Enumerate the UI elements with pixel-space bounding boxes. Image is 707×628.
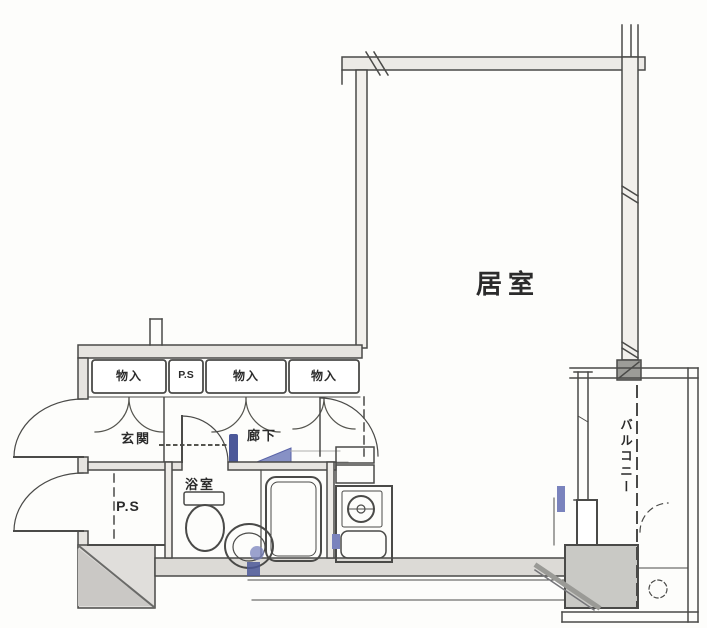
floorplan-canvas: 居室 物入 P.S 物入 物入 玄関 廊下 浴室 P.S バルコニー (0, 0, 707, 628)
storage-2-label: 物入 (221, 367, 271, 384)
floorplan-drawing (0, 0, 707, 628)
exterior-walls (78, 25, 645, 608)
storage-3-label: 物入 (299, 367, 349, 384)
entrance-label: 玄関 (110, 428, 162, 447)
pipe-space-lower-label: P.S (106, 498, 150, 514)
living-room-label: 居室 (468, 264, 548, 301)
entrance-hallway (14, 397, 378, 531)
balcony-label: バルコニー (616, 392, 635, 522)
kitchen-structure (332, 447, 392, 562)
hallway-label: 廊下 (236, 425, 288, 444)
pipe-space-upper-label: P.S (168, 369, 204, 381)
bathroom-label: 浴室 (174, 474, 226, 493)
storage-1-label: 物入 (104, 367, 154, 384)
